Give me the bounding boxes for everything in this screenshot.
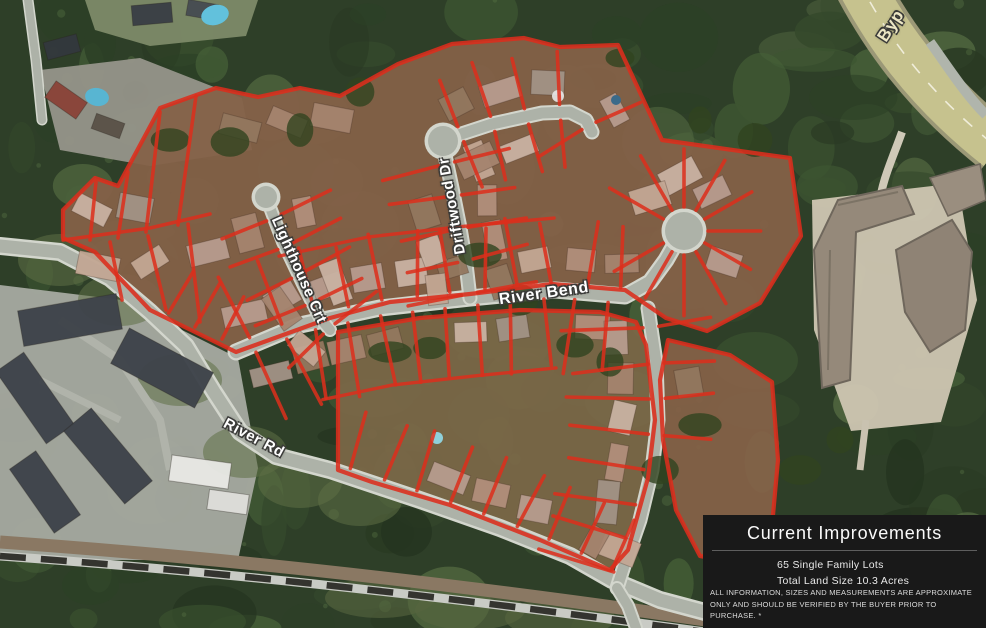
panel-divider [712, 550, 977, 551]
panel-disclaimer: ALL INFORMATION, SIZES AND MEASUREMENTS … [710, 587, 976, 621]
aerial-map-stage: Driftwood Dr Lighthouse Crt River Bend R… [0, 0, 986, 628]
info-panel: Current Improvements 65 Single Family Lo… [703, 515, 986, 628]
panel-detail-lots: 65 Single Family Lots [703, 558, 986, 574]
panel-title: Current Improvements [703, 523, 986, 544]
